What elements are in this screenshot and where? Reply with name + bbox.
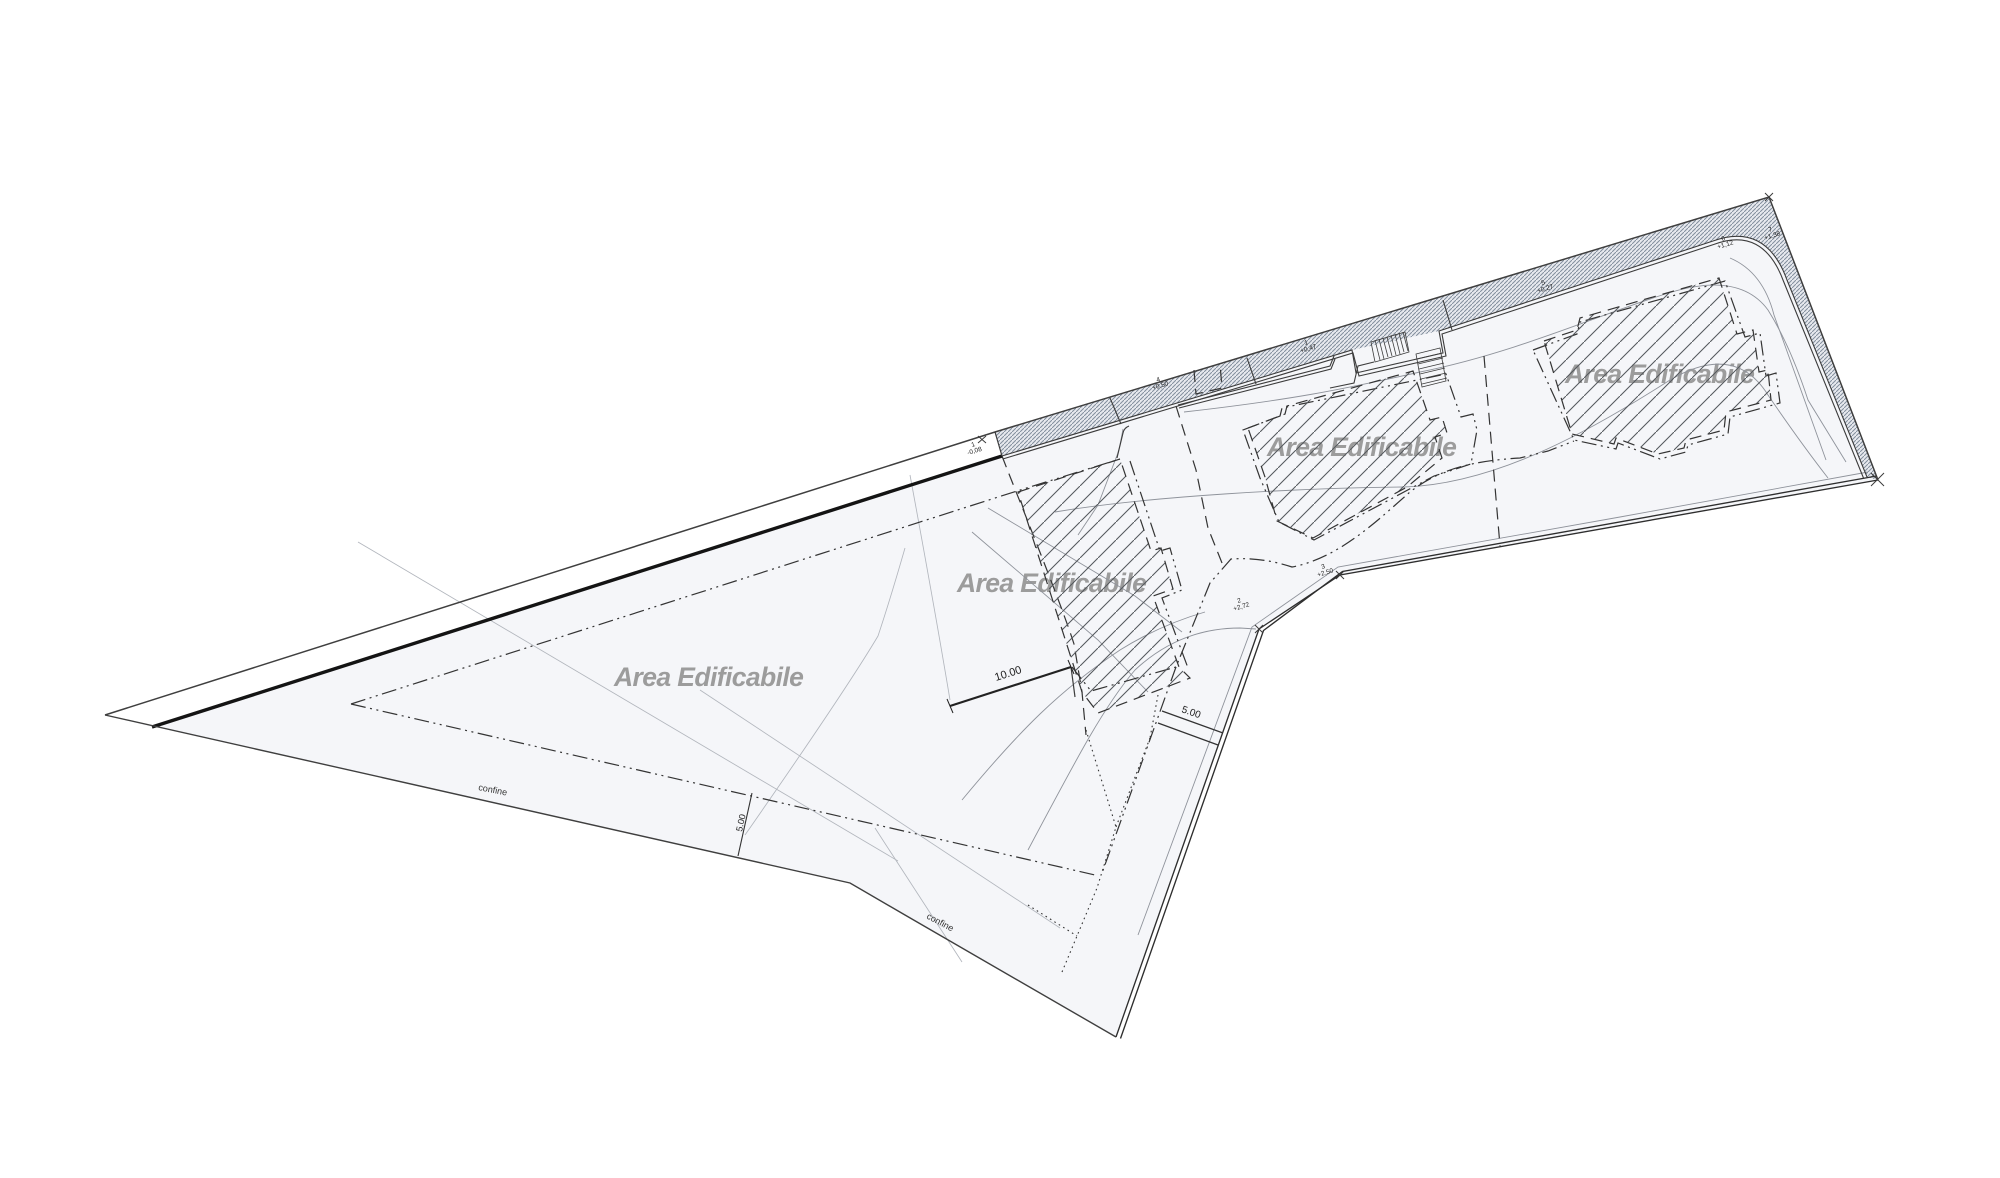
svg-text:Area Edificabile: Area Edificabile [613, 662, 803, 692]
